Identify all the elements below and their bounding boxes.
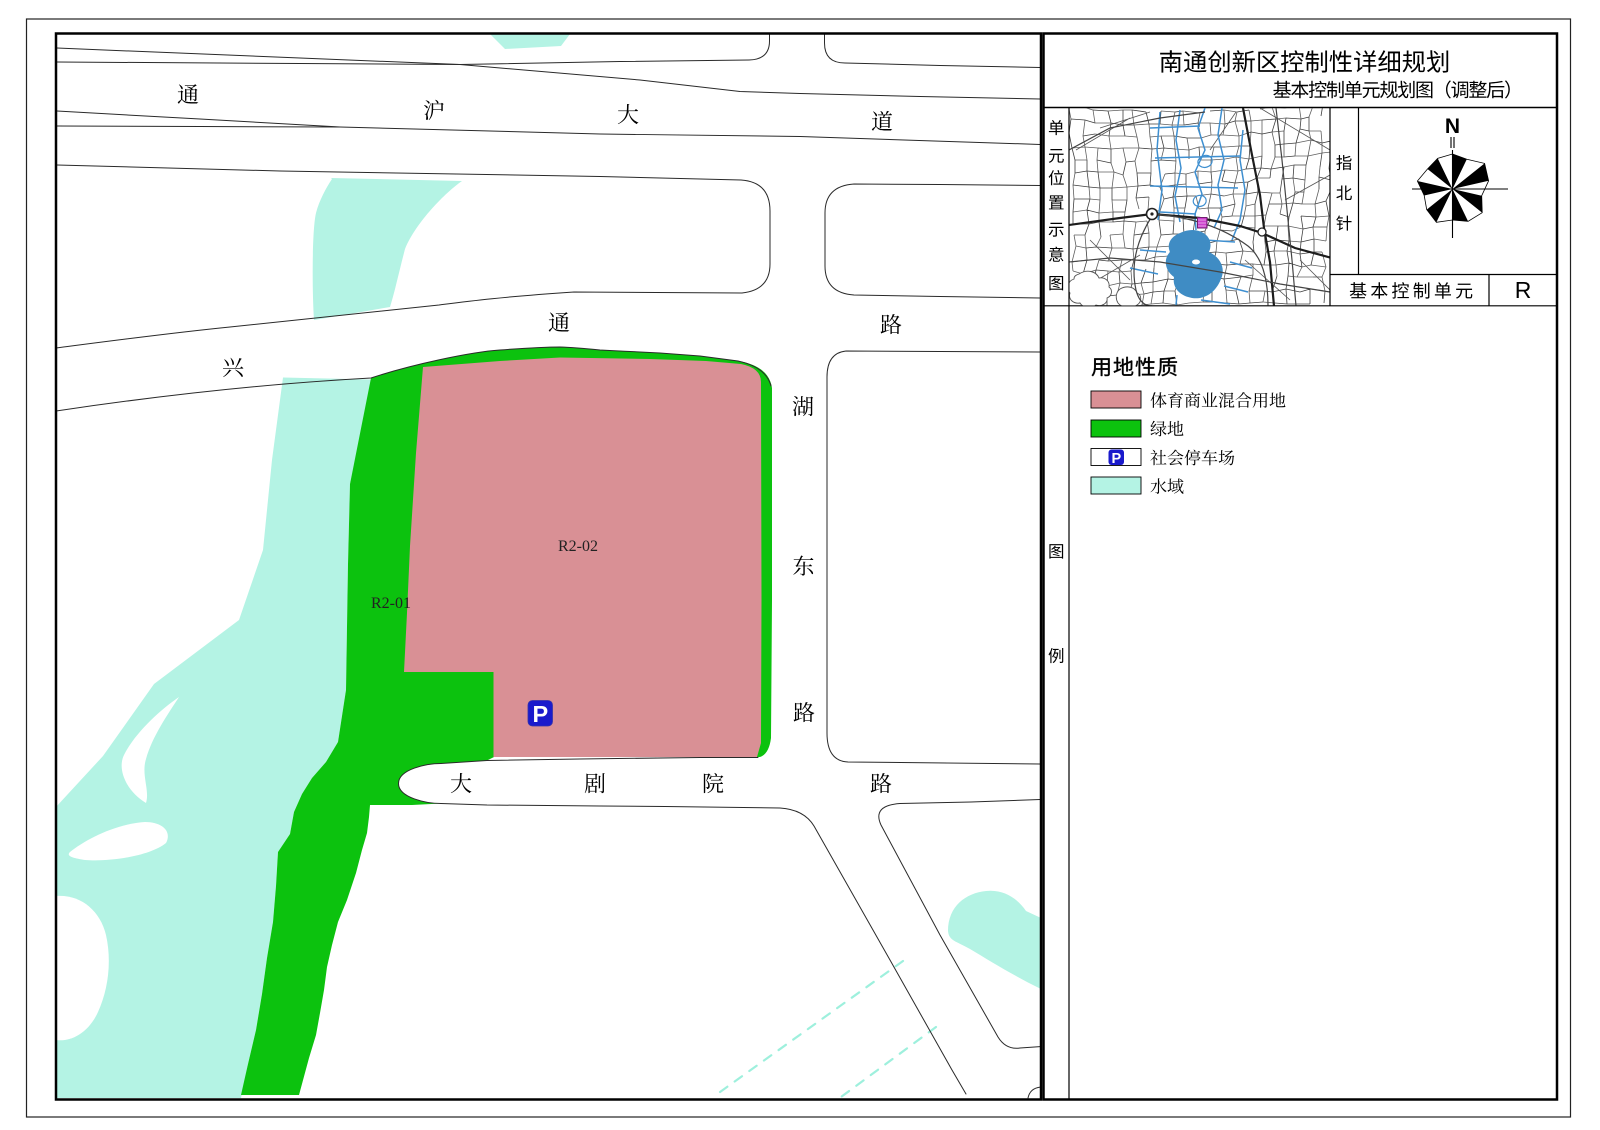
svg-text:R2-02: R2-02 — [558, 538, 598, 555]
svg-text:R: R — [1515, 277, 1532, 303]
svg-text:R2-01: R2-01 — [371, 595, 411, 612]
svg-text:P: P — [532, 701, 548, 727]
svg-text:P: P — [1111, 451, 1121, 467]
svg-text:N: N — [1445, 115, 1460, 138]
